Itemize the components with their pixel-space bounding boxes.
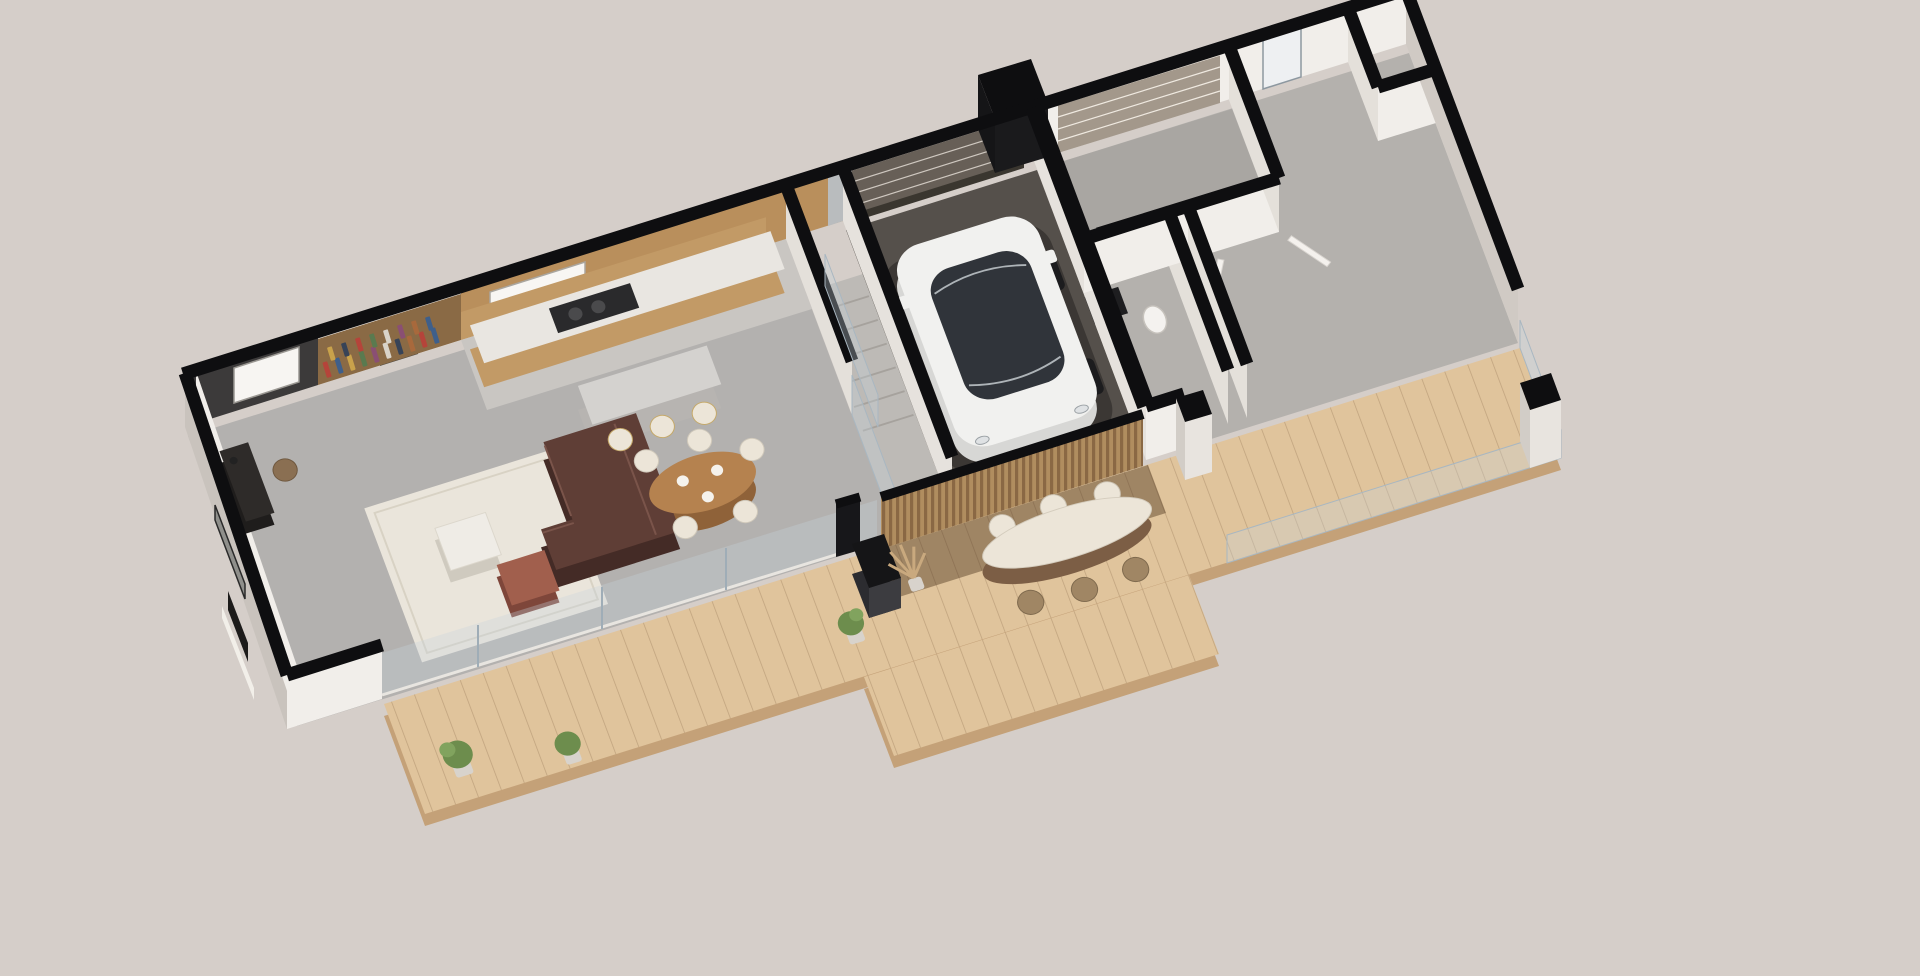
concrete-pillar-corner [1520, 373, 1561, 468]
concrete-pillar [1176, 390, 1212, 480]
floor-plan-render [0, 0, 1920, 976]
